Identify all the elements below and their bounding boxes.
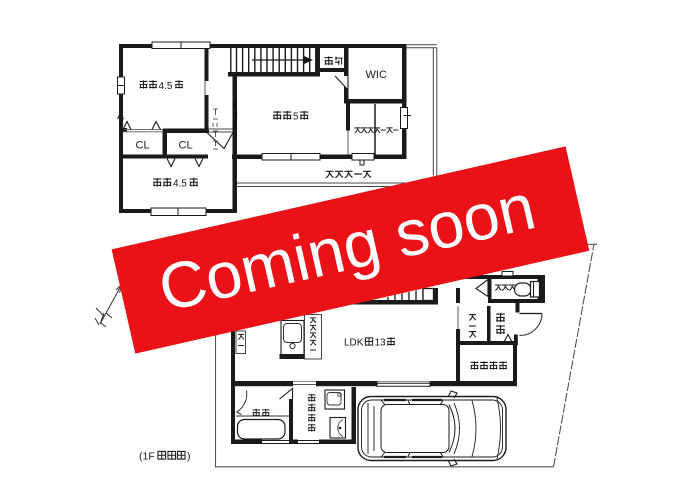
svg-text:WIC: WIC bbox=[366, 69, 387, 81]
svg-text:5: 5 bbox=[293, 112, 299, 123]
svg-text:13: 13 bbox=[375, 338, 387, 349]
svg-text:4.5: 4.5 bbox=[173, 179, 187, 190]
svg-text:): ) bbox=[187, 451, 191, 463]
svg-text:4.5: 4.5 bbox=[159, 81, 173, 92]
svg-text:CL: CL bbox=[136, 140, 150, 152]
svg-text:(1F: (1F bbox=[139, 451, 155, 463]
svg-text:CL: CL bbox=[179, 140, 193, 152]
svg-text:LDK: LDK bbox=[344, 338, 364, 349]
